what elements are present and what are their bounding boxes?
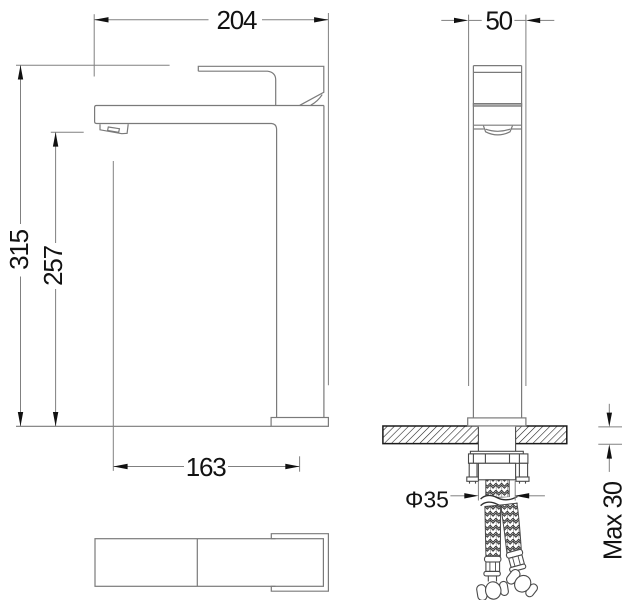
svg-text:204: 204 bbox=[217, 5, 258, 35]
svg-text:257: 257 bbox=[38, 245, 68, 286]
svg-text:315: 315 bbox=[4, 229, 34, 270]
svg-text:Φ35: Φ35 bbox=[405, 486, 449, 512]
svg-text:163: 163 bbox=[186, 452, 227, 482]
svg-text:Max 30: Max 30 bbox=[600, 481, 628, 560]
svg-text:50: 50 bbox=[485, 6, 512, 36]
